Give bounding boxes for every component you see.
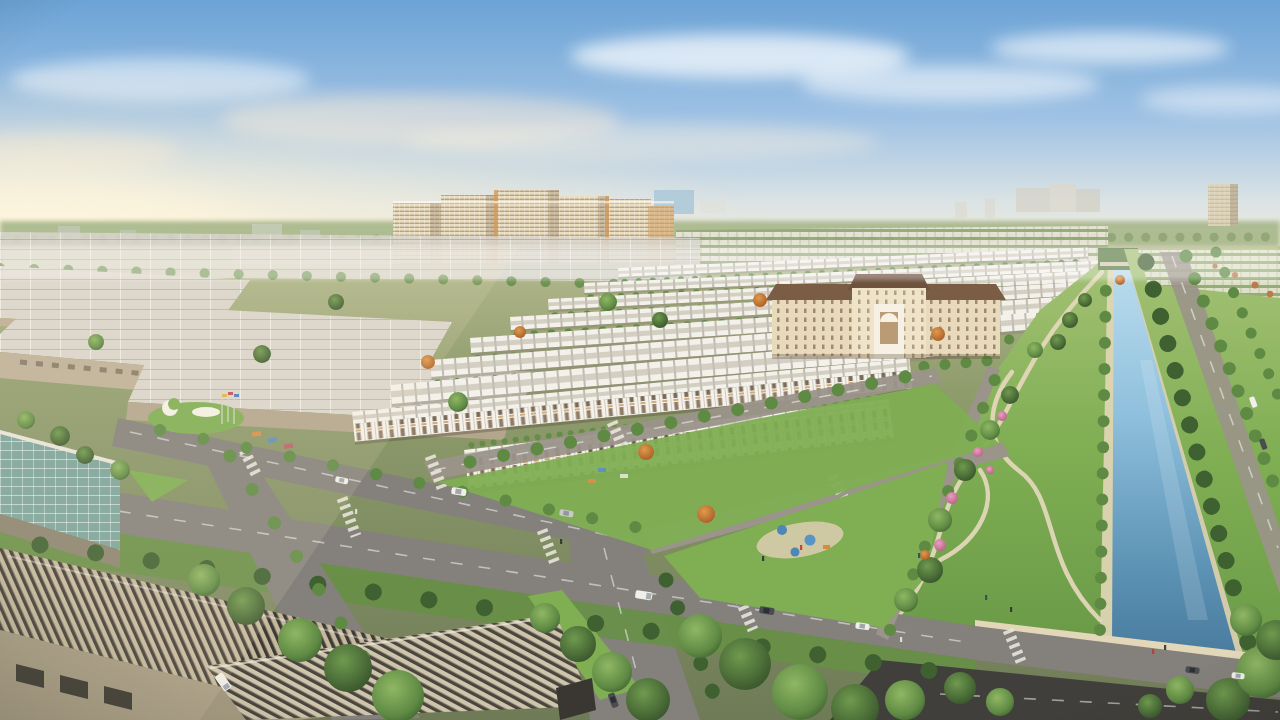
render-canvas (0, 0, 1280, 720)
atmosphere (0, 0, 1280, 720)
aerial-render-scene (0, 0, 1280, 720)
